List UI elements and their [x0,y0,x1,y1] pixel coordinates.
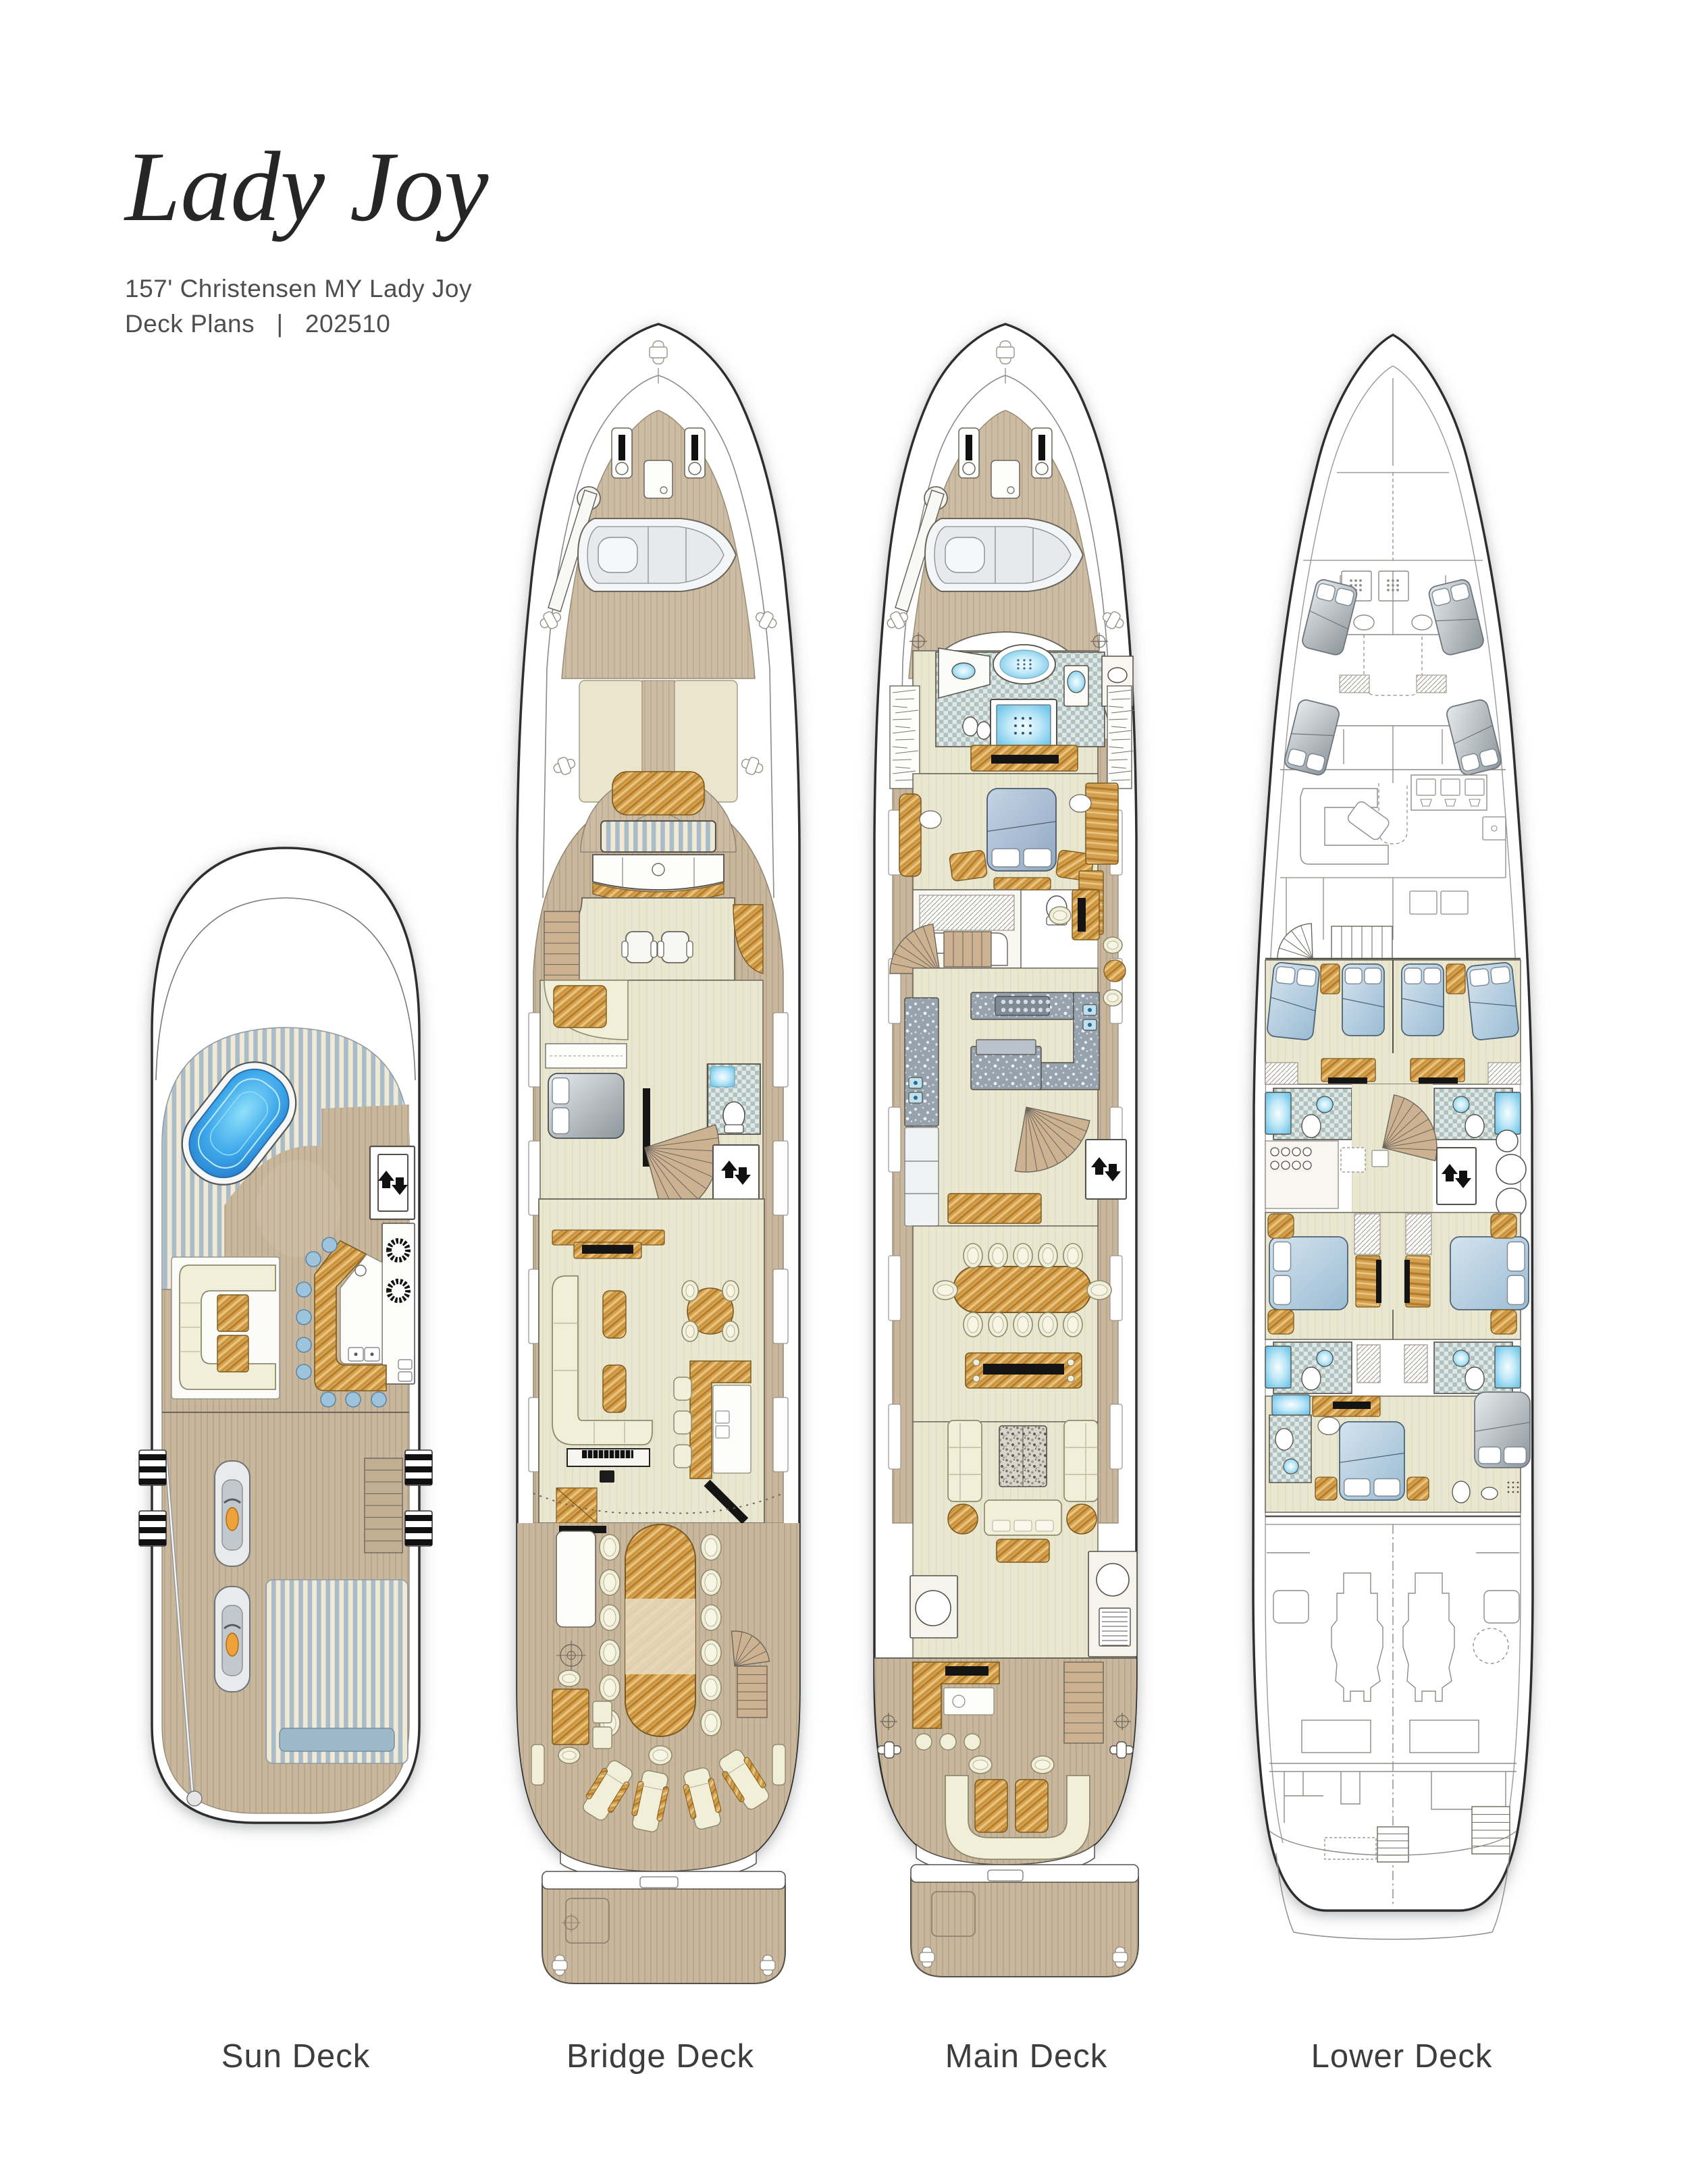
svg-text:157' Christensen MY Lady Joy: 157' Christensen MY Lady Joy [125,275,472,302]
svg-text:Deck Plans | 202510: Deck Plans | 202510 [125,310,390,338]
svg-text:Bridge Deck: Bridge Deck [566,2038,754,2075]
svg-text:Sun Deck: Sun Deck [221,2038,370,2075]
svg-text:Main Deck: Main Deck [945,2038,1107,2075]
svg-text:Lower Deck: Lower Deck [1311,2038,1493,2075]
svg-text:Lady Joy: Lady Joy [124,132,489,242]
